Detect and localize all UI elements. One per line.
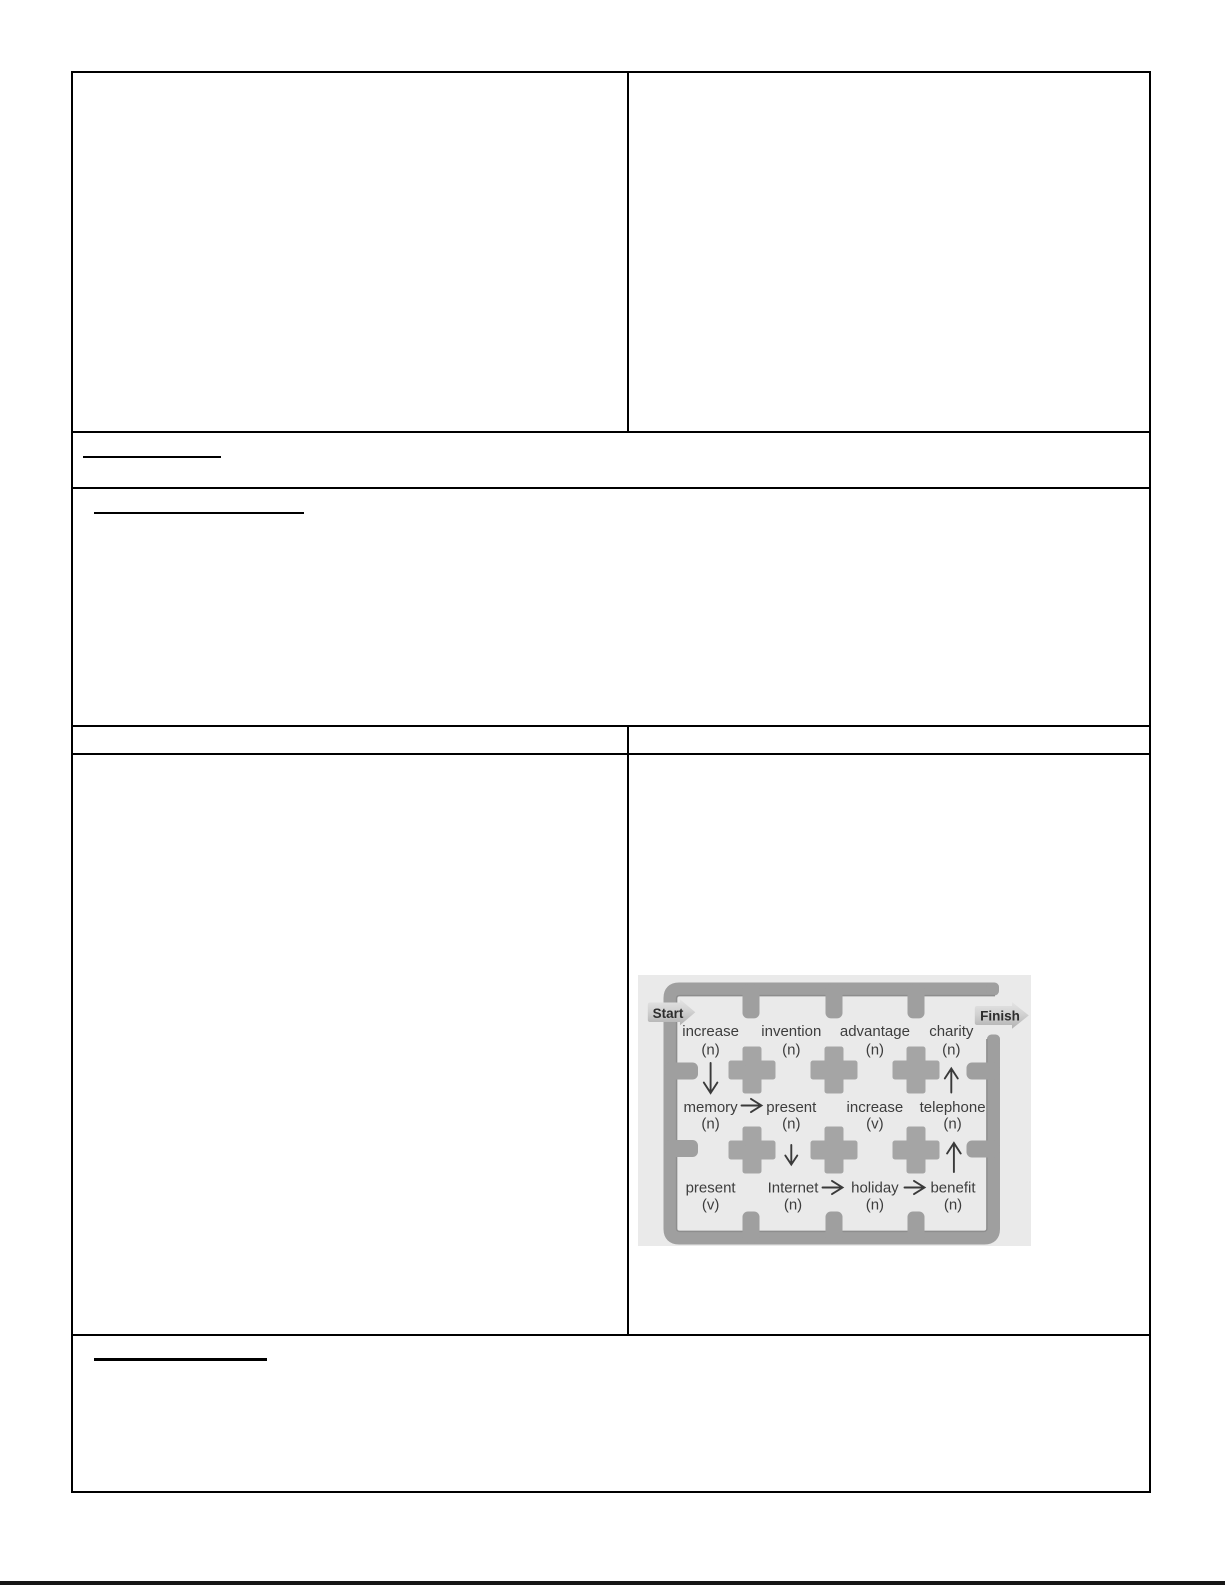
svg-text:Internet: Internet bbox=[768, 1180, 820, 1197]
svg-text:(n): (n) bbox=[866, 1197, 884, 1214]
svg-text:present: present bbox=[766, 1099, 817, 1116]
svg-text:charity: charity bbox=[929, 1023, 974, 1040]
svg-text:(n): (n) bbox=[701, 1116, 719, 1133]
svg-text:invention: invention bbox=[761, 1023, 821, 1040]
svg-text:(n): (n) bbox=[944, 1197, 962, 1214]
svg-text:Finish: Finish bbox=[980, 1009, 1020, 1024]
svg-text:(n): (n) bbox=[866, 1042, 884, 1059]
svg-text:(n): (n) bbox=[784, 1197, 802, 1214]
svg-text:telephone: telephone bbox=[920, 1099, 986, 1116]
svg-text:(n): (n) bbox=[782, 1116, 800, 1133]
svg-text:(n): (n) bbox=[943, 1116, 961, 1133]
svg-text:memory: memory bbox=[684, 1099, 739, 1116]
svg-text:increase: increase bbox=[847, 1099, 904, 1116]
svg-text:Start: Start bbox=[653, 1006, 684, 1021]
svg-text:increase: increase bbox=[682, 1023, 739, 1040]
svg-text:(n): (n) bbox=[942, 1042, 960, 1059]
svg-text:holiday: holiday bbox=[851, 1180, 899, 1197]
svg-text:(n): (n) bbox=[782, 1042, 800, 1059]
svg-text:present: present bbox=[686, 1180, 737, 1197]
svg-text:(v): (v) bbox=[702, 1197, 720, 1214]
svg-text:advantage: advantage bbox=[840, 1023, 910, 1040]
svg-text:benefit: benefit bbox=[930, 1180, 976, 1197]
svg-text:(v): (v) bbox=[866, 1116, 884, 1133]
svg-text:(n): (n) bbox=[701, 1042, 719, 1059]
